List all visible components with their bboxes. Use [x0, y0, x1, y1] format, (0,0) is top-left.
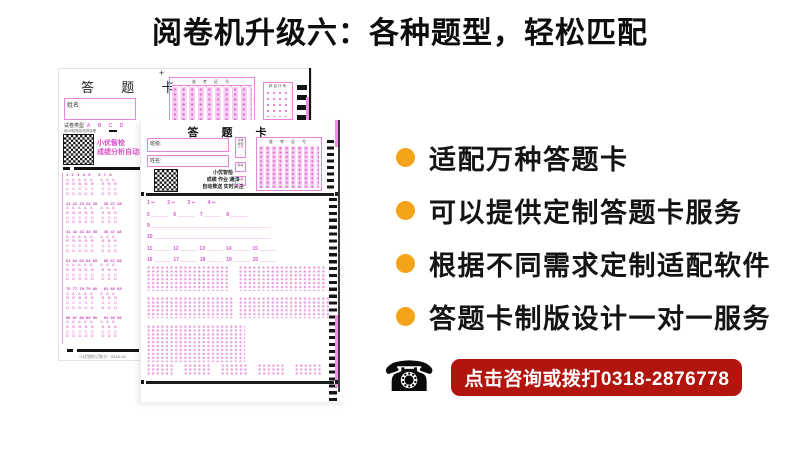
track-dot [335, 380, 338, 384]
bubble-group [295, 364, 323, 375]
feature-label: 答题卡制版设计一对一服务 [429, 297, 771, 336]
bubble-group [221, 364, 249, 375]
back-name-label: 姓名: [67, 100, 81, 109]
back-sheet-footer: 小优智检订购卡：0318-28 [79, 354, 126, 360]
back-admission-number-grid: 准 考 证 号 [169, 77, 255, 125]
timing-marks-right-upper [327, 140, 334, 190]
bubble-group [147, 364, 175, 375]
track-dot [141, 380, 144, 384]
question-row-16-20: 16 ______ 17 ______ 18 ______ 19 ______ … [147, 257, 276, 263]
feature-list: 适配万种答题卡 可以提供定制答题卡服务 根据不同需求定制适配软件 答题卡制版设计… [396, 142, 771, 331]
front-admission-number-grid: 准 考 证 号 [256, 137, 322, 191]
bullet-dot-icon [396, 307, 415, 326]
footer-line [77, 349, 139, 352]
question-row-11-15: 11 ______ 12 ______ 13 ______ 14 ______ … [147, 246, 276, 252]
separator-dash [63, 167, 70, 170]
class-field: 班级: [147, 138, 229, 152]
contact-row: ☎ 点击咨询或拨打0318-2876778 [383, 354, 742, 400]
qr-code-front [154, 169, 178, 192]
bubble-block [147, 325, 245, 362]
contact-banner[interactable]: 点击咨询或拨打0318-2876778 [451, 359, 742, 396]
qr-caption-front: 小优智检 成绩 作业 通知 自动推送 实时关注 [181, 170, 265, 190]
back-name-field: 姓名: [64, 98, 136, 120]
paper-type-ab: A B [236, 146, 245, 150]
bubble-block [147, 297, 233, 318]
edge-pink-bar-bottom [335, 315, 338, 387]
slide-title: 阅卷机升级六：各种题型，轻松匹配 [0, 8, 800, 52]
qr-caption-line2: 成绩 作业 通知 [181, 177, 265, 184]
qr-code-back [63, 134, 94, 165]
front-name-field: 姓名: [147, 155, 229, 167]
registration-plus-mark: + [159, 68, 164, 78]
bubble-group [184, 364, 212, 375]
timing-dash [109, 130, 117, 133]
bullet-dot-icon [396, 254, 415, 273]
slide-canvas: 阅卷机升级六：各种题型，轻松匹配 答 题 卡 + 准 考 证 号 科目代号 姓名… [0, 0, 800, 452]
bubble-block [239, 266, 327, 291]
qr-caption-line1: 小优智检 [181, 170, 265, 177]
track-dot [141, 192, 144, 196]
question-row-1-4: 1 ▪▪ 2 ▪▪ 3 ▪▪ 4 ▪▪ [147, 200, 215, 206]
bubble-block [239, 297, 331, 318]
absent-mini-box: 缺考 [235, 162, 246, 172]
edge-line [338, 120, 340, 392]
front-name-label: 姓名: [150, 157, 161, 164]
bubble-block [147, 266, 229, 291]
feature-label: 可以提供定制答题卡服务 [429, 191, 743, 230]
answer-sheet-front: 答 题 卡 班级: 姓名: 小优智检 成绩 作业 通知 自动推送 实时关注 试卷… [140, 120, 346, 402]
qr-caption-line3: 自动推送 实时关注 [181, 184, 265, 191]
paper-type-row: 试卷类型 A B C D [64, 122, 126, 129]
bubble-group [258, 364, 286, 375]
feature-item: 根据不同需求定制适配软件 [396, 248, 771, 278]
track-dot [335, 192, 338, 196]
footer-dash [67, 349, 73, 352]
admission-number-header: 准 考 证 号 [257, 139, 321, 145]
feature-label: 根据不同需求定制适配软件 [429, 244, 771, 283]
feature-item: 答题卡制版设计一对一服务 [396, 301, 771, 331]
feature-label: 适配万种答题卡 [429, 138, 629, 177]
barcode-mini-box: 条码 [235, 176, 246, 186]
feature-item: 适配万种答题卡 [396, 142, 771, 172]
question-row-9: 9 ______________________________________… [147, 223, 271, 229]
bullet-dot-icon [396, 148, 415, 167]
feature-item: 可以提供定制答题卡服务 [396, 195, 771, 225]
subject-code-box: 科目代号 [263, 82, 293, 120]
timing-track-bottom [146, 381, 334, 384]
subject-code-header: 科目代号 [264, 84, 292, 89]
class-label: 班级: [150, 140, 161, 147]
subject-code-bubbles [266, 91, 290, 117]
paper-type-mini-box: 试卷 类型A B [235, 137, 246, 158]
question-row-10: 10 _____________________________________… [147, 234, 271, 240]
bullet-dot-icon [396, 201, 415, 220]
question-row-5-8: 5 ______ 6 ______ 7 ______ 8 ______ [147, 212, 247, 218]
admission-number-bubbles [172, 87, 252, 122]
admission-number-bubbles [259, 146, 319, 188]
phone-icon: ☎ [383, 354, 435, 400]
timing-track-top [146, 193, 334, 196]
